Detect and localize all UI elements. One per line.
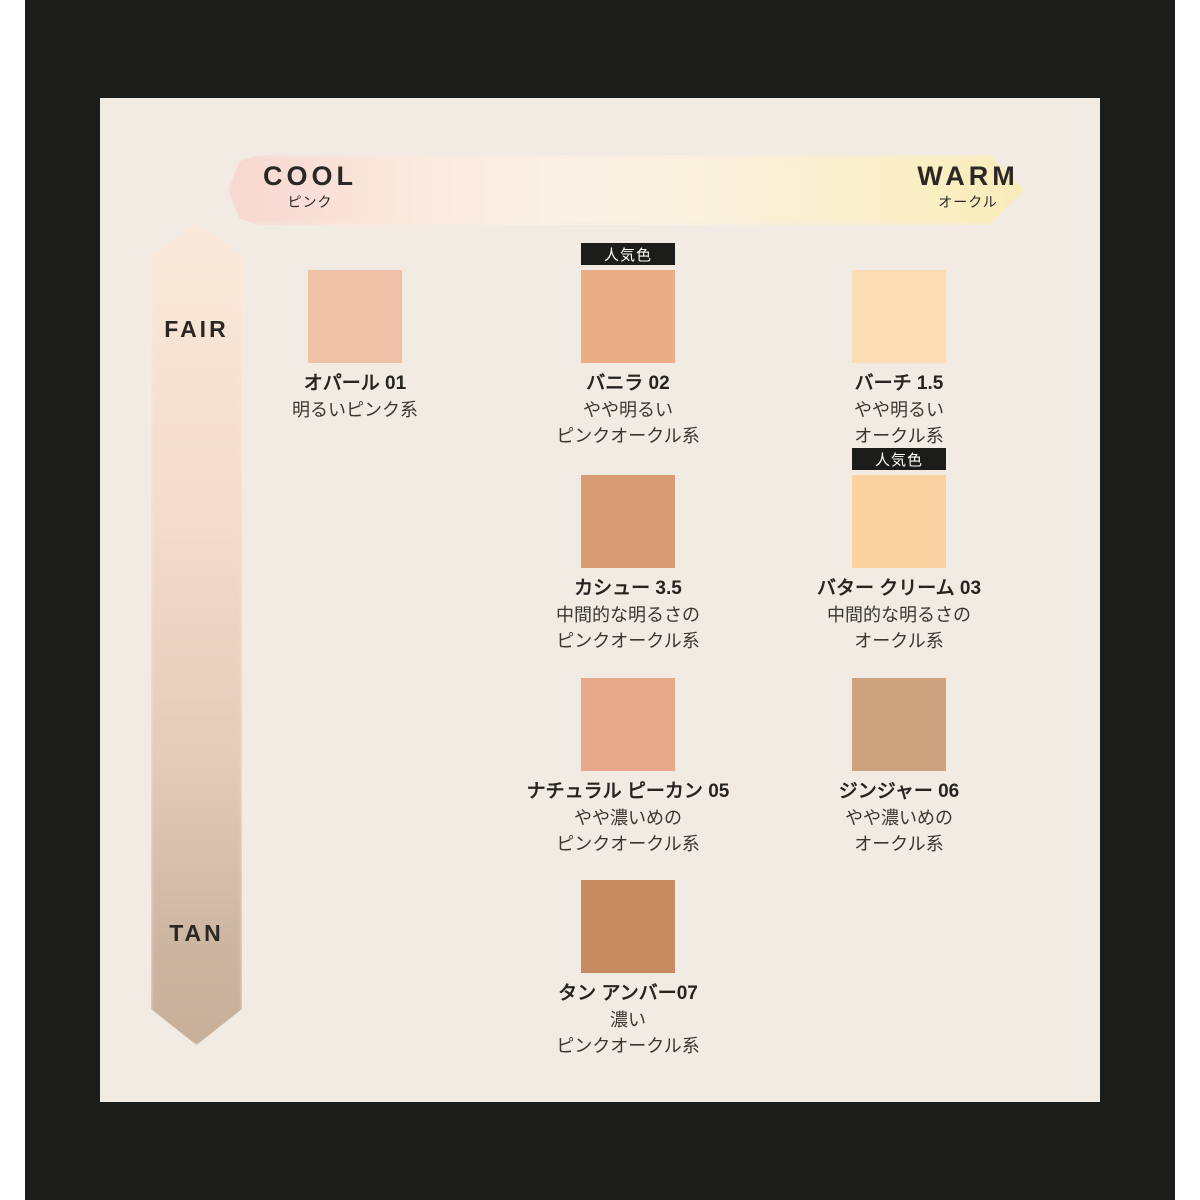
shade-label: ジンジャー 06 やや濃いめの オークル系 <box>769 779 1029 857</box>
shade-description: 明るいピンク系 <box>225 397 485 423</box>
shade-label: タン アンバー07 濃い ピンクオークル系 <box>498 981 758 1059</box>
shade-name: ナチュラル ピーカン 05 <box>498 779 758 805</box>
shade-cell-opal-01: オパール 01 明るいピンク系 <box>308 270 402 363</box>
cool-axis-label: COOL ピンク <box>250 161 370 211</box>
warm-label: WARM <box>908 161 1028 191</box>
shade-swatch <box>581 678 675 771</box>
popular-badge: 人気色 <box>581 243 675 265</box>
shade-name: タン アンバー07 <box>498 981 758 1007</box>
cool-label: COOL <box>250 161 370 191</box>
shade-label: バーチ 1.5 やや明るい オークル系 <box>769 371 1029 449</box>
shade-description: やや濃いめの ピンクオークル系 <box>498 805 758 857</box>
shade-label: バニラ 02 やや明るい ピンクオークル系 <box>498 371 758 449</box>
shade-label: バター クリーム 03 中間的な明るさの オークル系 <box>769 576 1029 654</box>
shade-cell-vanilla-02: 人気色 バニラ 02 やや明るい ピンクオークル系 <box>581 270 675 363</box>
shade-cell-butter-cream-03: 人気色 バター クリーム 03 中間的な明るさの オークル系 <box>852 475 946 568</box>
cool-sublabel: ピンク <box>250 193 370 211</box>
shade-description: やや明るい オークル系 <box>769 397 1029 449</box>
shade-description: やや濃いめの オークル系 <box>769 805 1029 857</box>
shade-name: バーチ 1.5 <box>769 371 1029 397</box>
fair-label: FAIR <box>151 316 242 343</box>
tan-label: TAN <box>151 920 242 947</box>
shade-swatch <box>852 475 946 568</box>
popular-badge: 人気色 <box>852 448 946 470</box>
shade-swatch <box>581 270 675 363</box>
shade-swatch <box>581 475 675 568</box>
shade-label: ナチュラル ピーカン 05 やや濃いめの ピンクオークル系 <box>498 779 758 857</box>
shade-description: 中間的な明るさの ピンクオークル系 <box>498 602 758 654</box>
shade-name: バニラ 02 <box>498 371 758 397</box>
shade-description: 濃い ピンクオークル系 <box>498 1007 758 1059</box>
shade-label: カシュー 3.5 中間的な明るさの ピンクオークル系 <box>498 576 758 654</box>
shade-name: オパール 01 <box>225 371 485 397</box>
shade-cell-tan-amber-07: タン アンバー07 濃い ピンクオークル系 <box>581 880 675 973</box>
shade-cell-ginger-06: ジンジャー 06 やや濃いめの オークル系 <box>852 678 946 771</box>
warm-axis-label: WARM オークル <box>908 161 1028 211</box>
shade-swatch <box>308 270 402 363</box>
shade-cell-cashew-3-5: カシュー 3.5 中間的な明るさの ピンクオークル系 <box>581 475 675 568</box>
shade-name: バター クリーム 03 <box>769 576 1029 602</box>
shade-name: ジンジャー 06 <box>769 779 1029 805</box>
shade-label: オパール 01 明るいピンク系 <box>225 371 485 423</box>
shade-description: 中間的な明るさの オークル系 <box>769 602 1029 654</box>
shade-swatch <box>852 678 946 771</box>
shade-chart-panel: COOL ピンク WARM オークル FAIR TAN オパール 01 明るいピ… <box>100 98 1100 1102</box>
shade-cell-birch-1-5: バーチ 1.5 やや明るい オークル系 <box>852 270 946 363</box>
shade-name: カシュー 3.5 <box>498 576 758 602</box>
warm-sublabel: オークル <box>908 193 1028 211</box>
shade-swatch <box>581 880 675 973</box>
shade-description: やや明るい ピンクオークル系 <box>498 397 758 449</box>
shade-cell-natural-pecan-05: ナチュラル ピーカン 05 やや濃いめの ピンクオークル系 <box>581 678 675 771</box>
shade-swatch <box>852 270 946 363</box>
